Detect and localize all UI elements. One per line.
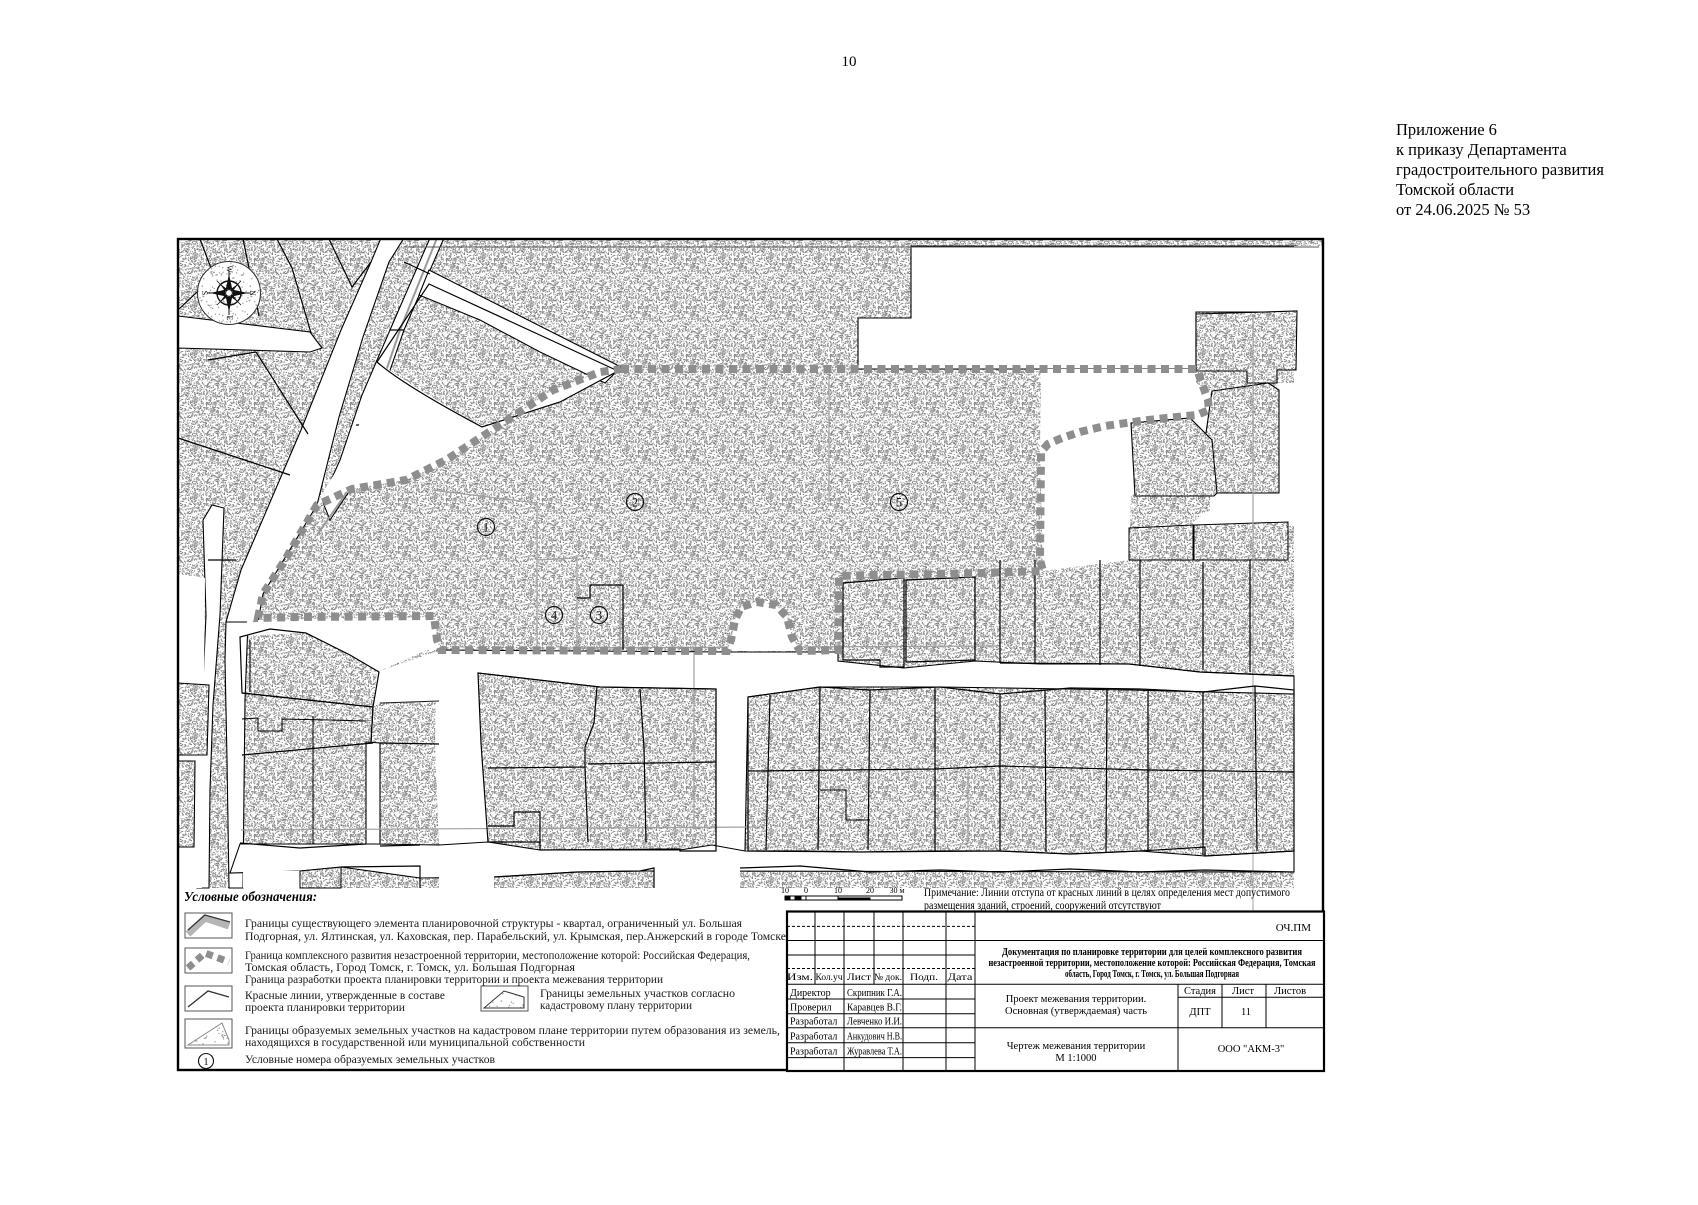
svg-text:S: S (200, 291, 209, 295)
svg-text:Условные обозначения:: Условные обозначения: (184, 889, 317, 904)
svg-text:Чертеж межевания территории: Чертеж межевания территории (1007, 1041, 1146, 1052)
svg-text:Разработал: Разработал (790, 1032, 837, 1043)
svg-text:E: E (225, 316, 234, 321)
svg-text:проекта планировки территории: проекта планировки территории (245, 1001, 405, 1014)
svg-text:незастроенной территории, мест: незастроенной территории, местоположение… (989, 958, 1316, 969)
svg-text:1: 1 (203, 1056, 209, 1068)
svg-text:0: 0 (804, 886, 808, 895)
svg-text:№ док.: № док. (874, 972, 902, 983)
svg-text:Основная (утверждаемая) часть: Основная (утверждаемая) часть (1005, 1006, 1147, 1017)
svg-text:Приложение 6: Приложение 6 (1396, 120, 1497, 139)
svg-text:Разработал: Разработал (790, 1017, 837, 1028)
svg-text:11: 11 (1241, 1007, 1251, 1018)
svg-text:5: 5 (896, 496, 902, 510)
svg-text:находящихся в государственной: находящихся в государственной или муници… (245, 1036, 585, 1049)
svg-text:30 м: 30 м (889, 886, 904, 895)
svg-text:Проект межевания территории.: Проект межевания территории. (1006, 994, 1146, 1005)
svg-text:область, Город Томск, г. Томск: область, Город Томск, г. Томск, ул. Боль… (1065, 969, 1239, 980)
svg-text:Подгорная, ул. Ялтинская, ул.: Подгорная, ул. Ялтинская, ул. Каховская,… (245, 930, 786, 943)
svg-text:Лист: Лист (847, 972, 872, 983)
svg-text:Каравцев В.Г.: Каравцев В.Г. (847, 1003, 902, 1014)
svg-text:Разработал: Разработал (790, 1047, 837, 1058)
svg-text:градостроительного развития: градостроительного развития (1396, 160, 1604, 179)
svg-text:20: 20 (866, 886, 874, 895)
svg-text:Листов: Листов (1274, 986, 1306, 997)
svg-text:ОЧ.ПМ: ОЧ.ПМ (1276, 922, 1312, 934)
svg-text:4: 4 (551, 609, 558, 623)
svg-text:10: 10 (842, 54, 857, 70)
svg-text:кадастровому плану территории: кадастровому плану территории (540, 999, 692, 1012)
svg-text:Изм.: Изм. (787, 972, 813, 983)
svg-text:Журавлева Т.А.: Журавлева Т.А. (847, 1047, 902, 1058)
svg-text:Примечание: Линии отступа от к: Примечание: Линии отступа от красных лин… (924, 885, 1290, 899)
svg-text:Директор: Директор (790, 988, 831, 999)
svg-text:Стадия: Стадия (1184, 986, 1216, 997)
svg-text:М 1:1000: М 1:1000 (1055, 1053, 1096, 1064)
svg-text:Анкудович Н.В.: Анкудович Н.В. (847, 1032, 902, 1043)
svg-text:10: 10 (834, 886, 842, 895)
svg-text:10: 10 (781, 886, 789, 895)
svg-text:Дата: Дата (948, 972, 974, 983)
svg-text:Документация по планировке тер: Документация по планировке территории дл… (1002, 947, 1302, 958)
svg-text:Проверил: Проверил (790, 1003, 832, 1014)
svg-text:Томской области: Томской области (1396, 180, 1514, 199)
svg-text:Условные номера образуемых зем: Условные номера образуемых земельных уча… (245, 1053, 495, 1066)
svg-text:к приказу Департамента: к приказу Департамента (1396, 140, 1567, 159)
svg-text:Кол.уч: Кол.уч (816, 972, 843, 983)
svg-text:Скрипник Г.А.: Скрипник Г.А. (847, 988, 902, 999)
svg-text:Лист: Лист (1232, 986, 1254, 997)
svg-text:Граница разработки проекта пла: Граница разработки проекта планировки те… (245, 973, 663, 986)
svg-text:Подп.: Подп. (910, 972, 938, 983)
svg-text:N: N (248, 290, 257, 296)
svg-text:размещения зданий, строений, с: размещения зданий, строений, сооружений … (924, 898, 1162, 912)
svg-text:W: W (225, 265, 234, 273)
svg-text:от 24.06.2025 № 53: от 24.06.2025 № 53 (1396, 200, 1530, 219)
svg-text:Левченко И.И.: Левченко И.И. (847, 1017, 902, 1028)
svg-text:ООО "АКМ-3": ООО "АКМ-3" (1218, 1044, 1285, 1055)
svg-text:3: 3 (596, 609, 602, 623)
svg-text:1: 1 (483, 521, 489, 535)
svg-text:ДПТ: ДПТ (1189, 1007, 1211, 1018)
svg-text:2: 2 (632, 496, 638, 510)
svg-text:Границы существующего элемента: Границы существующего элемента планирово… (245, 917, 743, 930)
